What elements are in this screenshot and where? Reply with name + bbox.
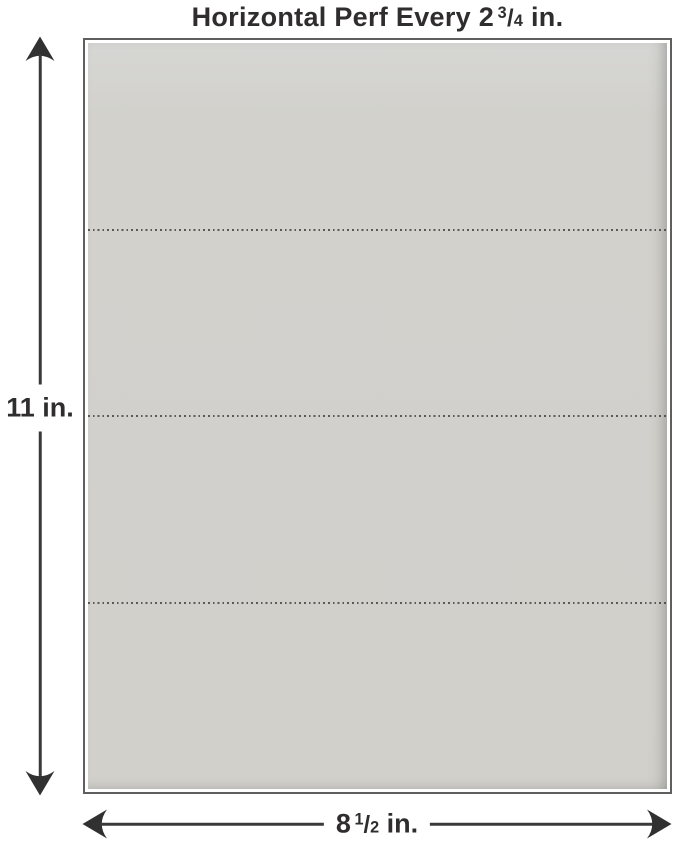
title-fraction-slash: / (507, 5, 514, 32)
perforation-line (88, 415, 667, 417)
width-dimension-label: 81/2 in. (324, 809, 430, 840)
diagram-title: Horizontal Perf Every 23/4 in. (83, 0, 672, 36)
height-dimension-label: 11 in. (4, 385, 76, 432)
width-fraction-denominator: 2 (370, 819, 379, 837)
title-unit: in. (531, 2, 563, 32)
paper-sheet (83, 38, 672, 794)
width-value: 8 (336, 809, 351, 839)
perforation-line (88, 602, 667, 604)
title-fraction-denominator: 4 (514, 12, 523, 30)
title-fraction-numerator: 3 (498, 4, 507, 22)
perforation-line (88, 229, 667, 231)
height-dimension-arrow: 11 in. (22, 36, 58, 796)
arrow-right-icon (646, 809, 672, 839)
width-dimension-arrow: 81/2 in. (84, 809, 670, 839)
arrow-down-icon (25, 770, 55, 796)
paper-surface (88, 43, 667, 789)
width-unit: in. (387, 809, 419, 839)
title-text: Horizontal Perf Every 2 (192, 2, 495, 32)
width-fraction-numerator: 1 (354, 810, 363, 828)
perforated-paper-diagram: Horizontal Perf Every 23/4 in. 11 in. 81… (0, 0, 679, 845)
